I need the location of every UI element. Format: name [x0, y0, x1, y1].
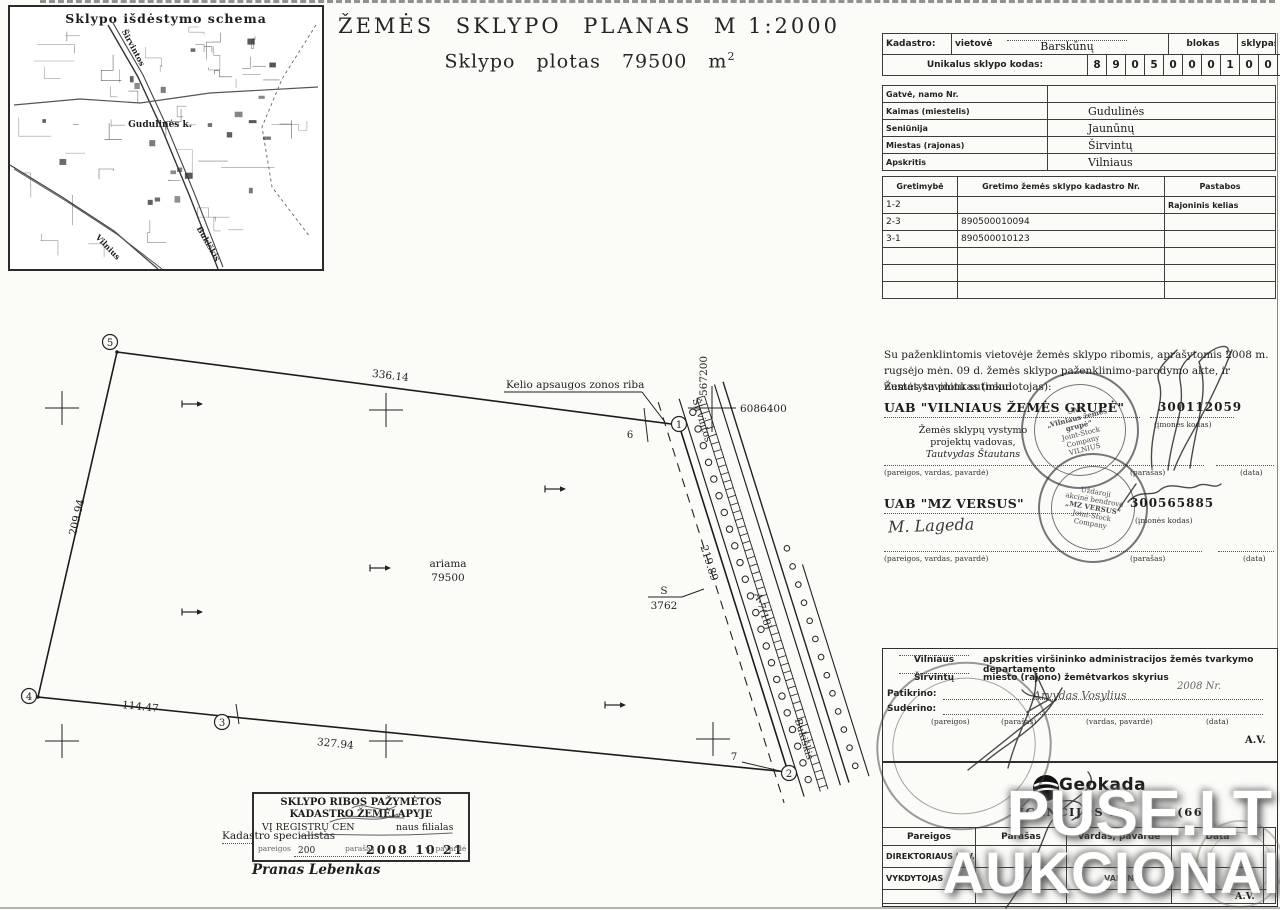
approval-county: Vilniaus	[899, 655, 969, 656]
title-word: SKLYPO	[456, 14, 562, 38]
adj-cell	[883, 282, 958, 299]
landuse-area: 79500	[431, 572, 464, 584]
title-scale: M 1:2000	[714, 14, 840, 38]
dotted-line	[1216, 465, 1274, 466]
adjacency-table: Gretimybė Gretimo žemės sklypo kadastro …	[882, 176, 1276, 299]
adj-cell	[958, 248, 1165, 265]
owner1-code-label: (įmonės kodas)	[1154, 420, 1212, 429]
code-digit: 9	[1107, 55, 1126, 76]
dim-bottom1: 114.47	[121, 699, 159, 715]
approval-col4: (data)	[1206, 717, 1229, 726]
code-digit: 5	[1145, 55, 1164, 76]
location-table: Gatvė, namo Nr. Kaimas (miestelis)Guduli…	[882, 85, 1276, 171]
map-road-bottom-left-label: Vilnius	[93, 231, 123, 262]
owner2-sign-label: (parašas)	[1130, 554, 1165, 563]
map-village-label: Gudulinės k.	[128, 119, 192, 130]
page-subtitle: Sklypo plotas 79500 m2	[380, 50, 800, 72]
plot-area-text: Sklypo plotas 79500 m	[445, 50, 728, 72]
approval-col3: (vardas, pavardė)	[1086, 717, 1153, 726]
unique-code-label: Unikalus sklypo kodas:	[883, 55, 1088, 76]
adj-cell	[1165, 231, 1276, 248]
vietove-label: vietovė	[952, 34, 1005, 55]
vertex-dot	[36, 695, 40, 699]
scanned-land-plot-plan: Širvintos Gudulinės k. Bukiškis Vilnius …	[0, 0, 1280, 910]
adj-cell: 1-2	[883, 197, 958, 214]
vertex-2: 2	[786, 769, 792, 780]
adj-header: Gretimo žemės sklypo kadastro Nr.	[958, 177, 1165, 197]
coord-easting: 567200	[698, 356, 710, 396]
vertex-3: 3	[219, 718, 225, 729]
owner2-date-label: (data)	[1243, 554, 1266, 563]
road-name-bottom: Bukiškis	[792, 717, 815, 761]
vertex-4: 4	[26, 692, 32, 703]
approval-handwritten-name: Arvydas Vosylius	[1033, 689, 1127, 702]
unique-code-row: Unikalus sklypo kodas: 8 9 0 5 0 0 0 1 0…	[882, 54, 1280, 76]
arable-land-arrows	[182, 401, 626, 709]
sup-2: 2	[727, 50, 735, 63]
adj-header: Pastabos	[1165, 177, 1276, 197]
owner1-sig-label: (pareigos, vardas, pavardė)	[884, 468, 988, 477]
adj-cell: 3-1	[883, 231, 958, 248]
landuse-label: ariama	[429, 558, 466, 570]
s-value: 3762	[651, 600, 678, 612]
vietove-text: Barskūnų	[1007, 40, 1127, 41]
page-title: ŽEMĖS SKLYPO PLANAS M 1:2000	[338, 14, 840, 38]
s-label: S	[660, 585, 667, 597]
code-digit: 8	[1088, 55, 1107, 76]
watermark-line2: AUKCIONAI	[935, 840, 1280, 907]
road-number: A-7(18)	[751, 591, 773, 631]
cert-role: Kadastro specialistas	[222, 830, 335, 842]
location-scheme-map: Širvintos Gudulinės k. Bukiškis Vilnius …	[8, 5, 324, 271]
cadastre-label: Kadastro:	[883, 34, 952, 55]
code-digit: 0	[1164, 55, 1183, 76]
owner2-name: UAB "MZ VERSUS"	[884, 496, 1024, 511]
vertex-6-tick	[644, 408, 648, 442]
approval-handwritten-year: 2008 Nr.	[1177, 681, 1221, 692]
map-road-top-label: Širvintos	[120, 28, 148, 69]
vertex-3-tick	[236, 704, 239, 724]
loc-value: Širvintų	[1048, 137, 1276, 154]
adj-cell	[958, 265, 1165, 282]
owner2-handwritten-signature: M. Lageda	[888, 515, 975, 537]
owner2-code: 300565885	[1130, 496, 1214, 510]
approval-av: A.V.	[1245, 735, 1266, 746]
coord-northing: 6086400	[740, 403, 787, 415]
adj-cell	[1165, 265, 1276, 282]
code-digit: 0	[1202, 55, 1221, 76]
scan-edge-top	[40, 0, 1275, 3]
dim-bottom2: 327.94	[316, 736, 354, 752]
vietove-value: Barskūnų	[1004, 34, 1169, 55]
owner1-date-label: (data)	[1240, 468, 1263, 477]
adj-cell	[958, 282, 1165, 299]
adj-cell	[1165, 214, 1276, 231]
dim-top: 336.14	[371, 368, 409, 384]
s-leader	[682, 589, 704, 597]
map-title: Sklypo išdėstymo schema	[10, 11, 322, 26]
vertex-5: 5	[107, 338, 113, 349]
watermark-line1: PUSE.LT	[950, 776, 1272, 850]
owner1-code: 300112059	[1158, 400, 1242, 414]
loc-label: Seniūnija	[883, 120, 1048, 137]
owner2-sig-label: (pareigos, vardas, pavardė)	[884, 554, 988, 563]
loc-label: Apskritis	[883, 154, 1048, 171]
adj-cell: 890500010123	[958, 231, 1165, 248]
code-digit: 0	[1126, 55, 1145, 76]
adj-cell: 2-3	[883, 214, 958, 231]
sklypas-label: sklypas	[1238, 34, 1276, 55]
adj-cell	[958, 197, 1165, 214]
vertex-dot	[115, 350, 119, 354]
blokas-label: blokas	[1169, 34, 1238, 55]
code-digit: 0	[1183, 55, 1202, 76]
vertex-7: 7	[731, 752, 737, 763]
code-digit: 0	[1259, 55, 1278, 76]
adj-cell	[883, 265, 958, 282]
adj-cell	[883, 248, 958, 265]
loc-label: Kaimas (miestelis)	[883, 103, 1048, 120]
adj-cell: Rajoninis kelias	[1165, 197, 1276, 214]
dim-road: 219.89	[697, 544, 720, 583]
map-noise-drawing: Širvintos Gudulinės k. Bukiškis Vilnius	[10, 7, 322, 269]
title-word: ŽEMĖS	[338, 14, 434, 38]
dotted-line	[1150, 417, 1234, 418]
cadastre-table: Kadastro: vietovė Barskūnų blokas sklypa…	[882, 33, 1276, 55]
plot-drawing: 336.14 209.94 114.47 327.94 219.89 Kelio…	[0, 300, 880, 910]
loc-value: Vilniaus	[1048, 154, 1276, 171]
adj-cell: 890500010094	[958, 214, 1165, 231]
loc-value: Gudulinės	[1048, 103, 1276, 120]
loc-label: Miestas (rajonas)	[883, 137, 1048, 154]
loc-value	[1048, 86, 1276, 103]
code-digit: 1	[1221, 55, 1240, 76]
zone-boundary-label: Kelio apsaugos zonos riba	[506, 379, 644, 391]
code-digit: 0	[1240, 55, 1259, 76]
title-word: PLANAS	[583, 14, 692, 38]
road-name-top: Širvintos	[690, 397, 715, 444]
vertex-6: 6	[627, 430, 633, 441]
loc-value: Jaunūnų	[1048, 120, 1276, 137]
road-strip	[658, 382, 869, 803]
loc-label: Gatvė, namo Nr.	[883, 86, 1048, 103]
vertex-1: 1	[676, 420, 682, 431]
dim-left: 209.94	[67, 498, 87, 537]
owner2-code-label: (įmonės kodas)	[1135, 516, 1193, 525]
dotted-line	[1218, 551, 1274, 552]
adj-cell	[1165, 282, 1276, 299]
approval-county-rest: apskrities viršininko administracijos že…	[983, 655, 1273, 675]
adj-cell	[1165, 248, 1276, 265]
adj-header: Gretimybė	[883, 177, 958, 197]
